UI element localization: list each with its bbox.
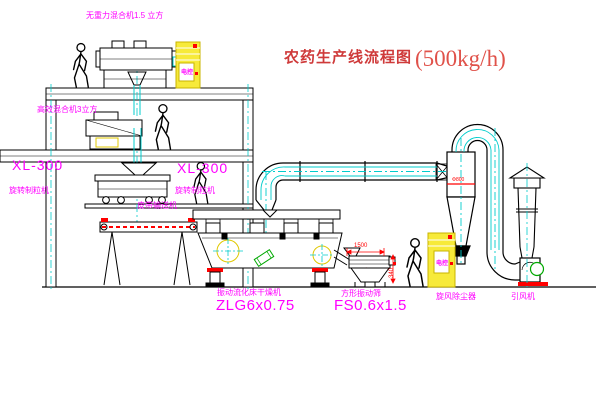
label-belt-conveyor: 皮带输送机 xyxy=(137,202,177,211)
title-capacity: (500kg/h) xyxy=(415,47,506,70)
label-dryer-model: ZLG6x0.75 xyxy=(216,298,295,315)
control-cabinet-top xyxy=(176,42,200,88)
label-granulator-mid-name: 旋转制粒机 xyxy=(175,187,215,196)
dimension-1500: 1500 xyxy=(354,243,367,249)
person-middle-floor xyxy=(155,105,170,149)
diagram-title: 农药生产线流程图 (500kg/h) xyxy=(284,46,506,70)
label-fan: 引风机 xyxy=(511,293,535,302)
feed-funnel xyxy=(122,163,156,175)
induced-draft-fan xyxy=(487,252,548,286)
gravity-mixer xyxy=(96,41,184,115)
exhaust-duct xyxy=(256,161,450,210)
label-granulator-left-name: 旋转制粒机 xyxy=(9,187,49,196)
cyclone-diameter: Φ800 xyxy=(452,177,464,183)
label-sieve-model: FS0.6x1.5 xyxy=(334,298,407,315)
dimension-340: 340 xyxy=(389,268,395,278)
person-top-floor xyxy=(74,44,89,88)
cabinet-top-text: 电控 xyxy=(181,67,193,76)
label-high-mixer: 高效混合机3立方 xyxy=(37,106,97,115)
belt-conveyor xyxy=(100,218,197,285)
label-granulator-mid-model: XL-300 xyxy=(177,161,228,176)
label-granulator-left-model: XL-300 xyxy=(12,158,63,173)
granulator xyxy=(95,175,170,203)
label-cyclone: 旋风除尘器 xyxy=(436,293,476,302)
fluid-bed-dryer xyxy=(193,210,350,287)
label-gravity-mixer: 无重力混合机1.5 立方 xyxy=(86,12,163,21)
title-text: 农药生产线流程图 xyxy=(284,46,412,67)
person-ground xyxy=(407,239,423,286)
process-flow-diagram: 农药生产线流程图 (500kg/h) 无重力混合机1.5 立方 高效混合机3立方… xyxy=(0,0,600,403)
cabinet-right-text: 电控 xyxy=(436,258,448,267)
